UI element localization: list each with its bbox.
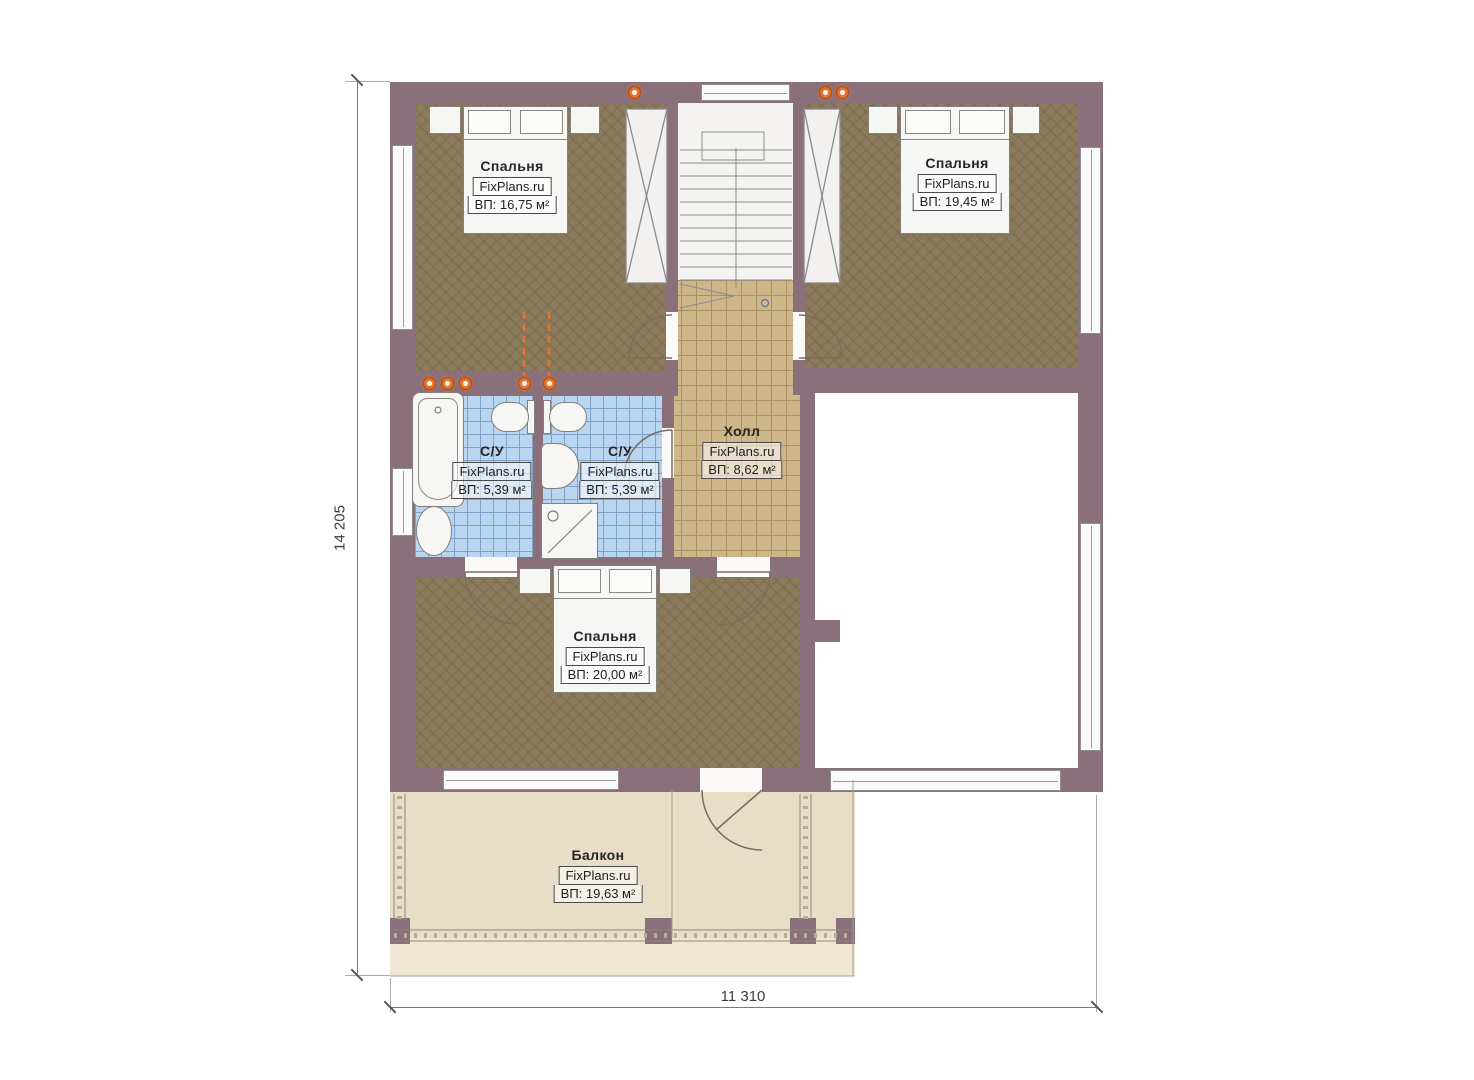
watermark: FixPlans.ru (702, 442, 781, 461)
toilet-left (491, 402, 529, 432)
room-label-hall: Холл FixPlans.ru ВП: 8,62 м² (701, 423, 782, 479)
window-bottom-bedroom (443, 770, 619, 790)
door-opening-bedroom-tr (793, 312, 805, 360)
nightstand (429, 106, 461, 134)
pillow (609, 569, 652, 593)
room-label-bedroom-top-left: Спальня FixPlans.ru ВП: 16,75 м² (468, 158, 557, 214)
watermark: FixPlans.ru (565, 647, 644, 666)
window-right-bedroom (1080, 147, 1101, 334)
door-opening-bathroom-left (465, 557, 517, 577)
window-left-bathroom (392, 468, 413, 536)
pillow (520, 110, 563, 134)
nightstand (868, 106, 898, 134)
balcony-apron (390, 938, 855, 976)
window-bottom-void (830, 770, 1061, 791)
wall-interior-mid-right (793, 368, 1103, 393)
dimension-label-height: 14 205 (332, 505, 349, 551)
light-dot-icon (628, 86, 641, 99)
watermark: FixPlans.ru (558, 866, 637, 885)
room-area: ВП: 19,63 м² (554, 885, 643, 903)
shower (541, 503, 598, 559)
room-name: С/У (608, 443, 632, 459)
room-name: Спальня (925, 155, 988, 171)
dimension-line-horizontal (390, 1007, 1097, 1008)
window-left-bedroom (392, 145, 413, 330)
light-dot-icon (441, 377, 454, 390)
balcony-post (762, 768, 790, 792)
room-name: Балкон (572, 847, 625, 863)
watermark: FixPlans.ru (580, 462, 659, 481)
room-area: ВП: 16,75 м² (468, 196, 557, 214)
window-right-void (1080, 523, 1101, 751)
toilet-right (549, 402, 587, 432)
room-name: Спальня (573, 628, 636, 644)
dimension-label-width: 11 310 (721, 988, 766, 1005)
room-name: Спальня (480, 158, 543, 174)
door-opening-bathroom-right (662, 428, 674, 478)
dimension-line-vertical (357, 80, 358, 976)
room-area: ВП: 8,62 м² (701, 461, 782, 479)
watermark: FixPlans.ru (917, 174, 996, 193)
watermark: FixPlans.ru (452, 462, 531, 481)
room-label-bedroom-bottom: Спальня FixPlans.ru ВП: 20,00 м² (561, 628, 650, 684)
light-dot-icon (423, 377, 436, 390)
balcony-post (645, 918, 672, 944)
balcony-post (790, 918, 816, 944)
room-area: ВП: 20,00 м² (561, 666, 650, 684)
door-opening-bedroom-tl (666, 312, 678, 360)
balcony-post (836, 918, 855, 944)
nightstand (519, 568, 551, 594)
dimension-extension (345, 975, 390, 976)
light-dot-icon (543, 377, 556, 390)
room-label-bathroom-left: С/У FixPlans.ru ВП: 5,39 м² (451, 443, 532, 499)
room-label-balcony: Балкон FixPlans.ru ВП: 19,63 м² (554, 847, 643, 903)
dimension-extension (345, 81, 390, 82)
light-dot-icon (518, 377, 531, 390)
wall-pier (813, 620, 840, 642)
pillow (468, 110, 511, 134)
room-area: ВП: 19,45 м² (913, 193, 1002, 211)
sink-left (416, 506, 452, 556)
room-label-bedroom-top-right: Спальня FixPlans.ru ВП: 19,45 м² (913, 155, 1002, 211)
room-name: Холл (724, 423, 761, 439)
door-opening-hall-bedroom (717, 557, 770, 577)
pillow (905, 110, 950, 134)
watermark: FixPlans.ru (472, 177, 551, 196)
pillow (558, 569, 601, 593)
staircase-floor (670, 93, 800, 288)
room-area: ВП: 5,39 м² (579, 481, 660, 499)
light-dot-icon (836, 86, 849, 99)
door-opening-balcony (700, 768, 763, 792)
light-dot-icon (459, 377, 472, 390)
light-dot-icon (819, 86, 832, 99)
room-name: С/У (480, 443, 504, 459)
room-label-bathroom-right: С/У FixPlans.ru ВП: 5,39 м² (579, 443, 660, 499)
floor-plan-canvas: Спальня FixPlans.ru ВП: 16,75 м² Спальня… (0, 0, 1474, 1080)
balcony-post (390, 918, 410, 944)
void-room-floor (808, 385, 1083, 775)
nightstand (1012, 106, 1040, 134)
nightstand (570, 106, 600, 134)
window-top-stairs (701, 84, 790, 101)
room-area: ВП: 5,39 м² (451, 481, 532, 499)
pillow (959, 110, 1004, 134)
nightstand (659, 568, 691, 594)
balcony-post (620, 768, 647, 792)
dimension-extension (1096, 795, 1097, 1012)
